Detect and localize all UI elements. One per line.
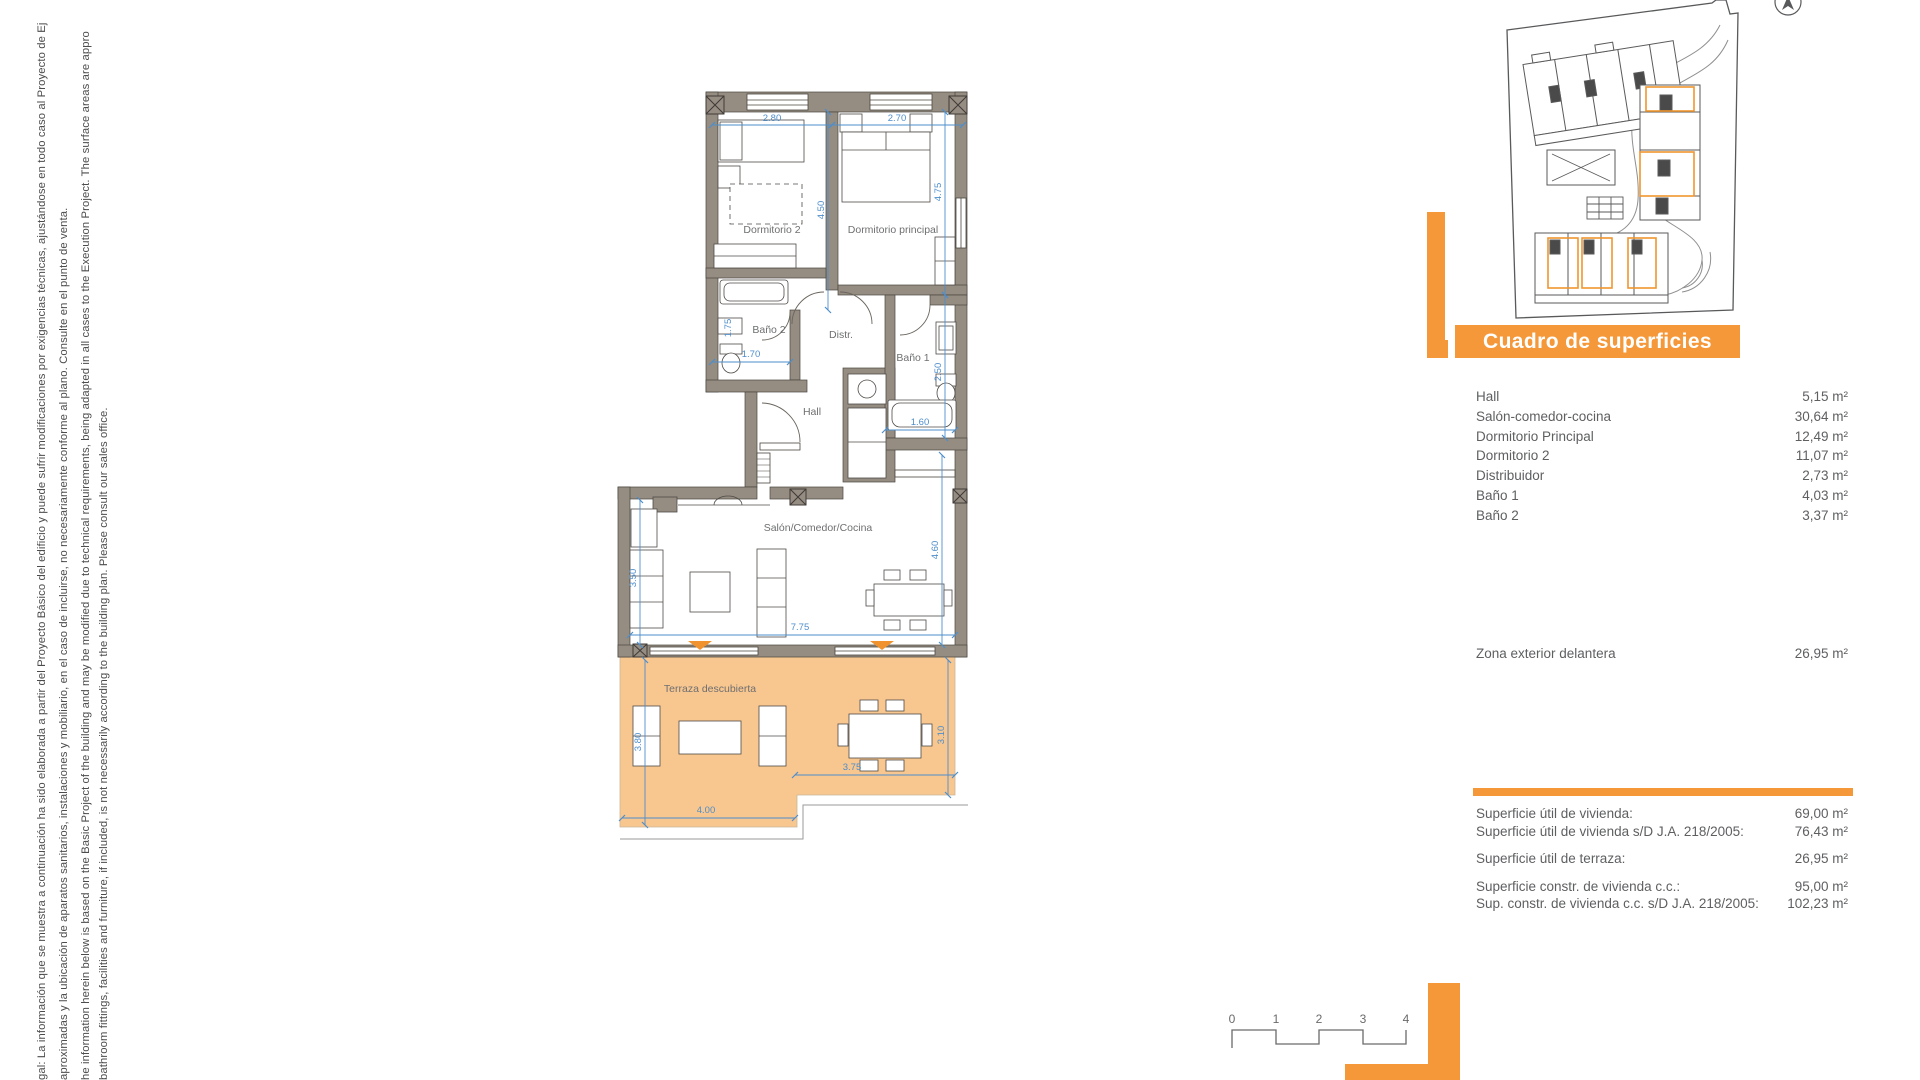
total-row: Superficie útil de terraza:26,95 m² [1476, 850, 1848, 868]
label-distribuidor: Distr. [829, 329, 853, 341]
label-dormitorio-2: Dormitorio 2 [743, 224, 800, 236]
row-value: 95,00 m² [1795, 878, 1848, 896]
exterior-row: Zona exterior delantera26,95 m² [1476, 644, 1848, 664]
row-value: 76,43 m² [1795, 823, 1848, 841]
row-label: Dormitorio 2 [1476, 446, 1550, 466]
row-label: Zona exterior delantera [1476, 644, 1616, 664]
row-label: Superficie constr. de vivienda c.c.: [1476, 878, 1680, 896]
row-value: 12,49 m² [1795, 427, 1848, 447]
scale-4: 4 [1403, 1012, 1410, 1026]
row-value: 4,03 m² [1802, 486, 1848, 506]
table-row: Baño 23,37 m² [1476, 506, 1848, 526]
hatched-door [757, 453, 770, 483]
row-value: 26,95 m² [1795, 850, 1848, 868]
row-value: 3,37 m² [1802, 506, 1848, 526]
dim-dorm2-width: 2.80 [763, 113, 782, 124]
disclaimer-line-es-2: aproximadas y la ubicación de aparatos s… [56, 0, 72, 1080]
row-label: Superficie útil de vivienda s/D J.A. 218… [1476, 823, 1744, 841]
site-plan [1490, 0, 1920, 330]
label-salon: Salón/Comedor/Cocina [764, 522, 873, 534]
row-label: Distribuidor [1476, 466, 1544, 486]
floor-plan: 2.80 2.70 4.50 4.75 1.70 1.75 1.60 2.50 … [560, 60, 1000, 880]
dim-terraza-width-left: 4.00 [697, 805, 716, 816]
scale-bar-line [1232, 1030, 1406, 1048]
dim-bano2-niche: 1.75 [723, 319, 734, 338]
orange-divider [1473, 788, 1853, 796]
disclaimer-line-en-1: he information herein below is based on … [78, 0, 94, 1080]
table-row: Distribuidor2,73 m² [1476, 466, 1848, 486]
dim-bano2-width: 1.70 [742, 349, 761, 360]
row-label: Superficie útil de terraza: [1476, 850, 1625, 868]
table-row: Salón-comedor-cocina30,64 m² [1476, 407, 1848, 427]
row-value: 5,15 m² [1802, 387, 1848, 407]
row-value: 11,07 m² [1796, 446, 1848, 466]
label-bano-1: Baño 1 [896, 352, 929, 364]
dim-salon-width: 7.75 [791, 622, 810, 633]
dim-bano1-depth: 2.50 [933, 363, 944, 382]
site-building-c [1535, 233, 1668, 303]
scale-0: 0 [1229, 1012, 1236, 1026]
disclaimer-line-es-1: gal: La información que se muestra a con… [34, 0, 50, 1080]
table-row: Dormitorio 211,07 m² [1476, 446, 1848, 466]
total-row: Superficie útil de vivienda s/D J.A. 218… [1476, 823, 1848, 841]
row-label: Hall [1476, 387, 1499, 407]
dim-terraza-left: 3.80 [633, 733, 644, 752]
label-hall: Hall [803, 406, 821, 418]
scale-2: 2 [1316, 1012, 1323, 1026]
table-row: Hall5,15 m² [1476, 387, 1848, 407]
row-value: 69,00 m² [1795, 805, 1848, 823]
dim-terraza-width-right: 3.75 [843, 762, 862, 773]
site-grid [1587, 197, 1623, 219]
scale-1: 1 [1273, 1012, 1280, 1026]
dim-terraza-right: 3.10 [936, 726, 947, 745]
total-row: Superficie útil de vivienda:69,00 m² [1476, 805, 1848, 823]
row-label: Baño 2 [1476, 506, 1519, 526]
row-label: Salón-comedor-cocina [1476, 407, 1611, 427]
corner-bracket-top-foot [1427, 340, 1448, 358]
total-row: Superficie constr. de vivienda c.c.:95,0… [1476, 878, 1848, 896]
row-label: Dormitorio Principal [1476, 427, 1594, 447]
row-label: Sup. constr. de vivienda c.c. s/D J.A. 2… [1476, 895, 1759, 913]
corner-bracket-bottom-foot [1345, 1064, 1460, 1080]
row-value: 102,23 m² [1787, 895, 1848, 913]
label-bano-2: Baño 2 [752, 324, 785, 336]
label-dormitorio-principal: Dormitorio principal [848, 224, 938, 236]
totals-block: Superficie útil de vivienda:69,00 m² Sup… [1476, 805, 1848, 913]
dim-dormp-depth: 4.75 [933, 183, 944, 202]
total-row: Sup. constr. de vivienda c.c. s/D J.A. 2… [1476, 895, 1848, 913]
dim-dormp-width: 2.70 [888, 113, 907, 124]
scale-bar: 0 1 2 3 4 [1215, 1000, 1425, 1060]
row-label: Superficie útil de vivienda: [1476, 805, 1633, 823]
label-terraza: Terraza descubierta [664, 683, 756, 695]
row-value: 26,95 m² [1795, 644, 1848, 664]
surfaces-table: Hall5,15 m² Salón-comedor-cocina30,64 m²… [1476, 387, 1848, 526]
page: gal: La información que se muestra a con… [0, 0, 1920, 1080]
north-arrow-icon [1775, 0, 1801, 15]
site-court [1547, 150, 1615, 185]
row-label: Baño 1 [1476, 486, 1519, 506]
scale-3: 3 [1360, 1012, 1367, 1026]
row-value: 2,73 m² [1802, 466, 1848, 486]
corner-bracket-top [1427, 212, 1445, 358]
dim-salon-left: 3.50 [628, 569, 639, 588]
dim-dorm2-depth: 4.50 [816, 201, 827, 220]
surfaces-title: Cuadro de superficies [1455, 325, 1740, 358]
dim-salon-right: 4.60 [930, 541, 941, 560]
table-row: Baño 14,03 m² [1476, 486, 1848, 506]
dim-bano1-width: 1.60 [911, 417, 930, 428]
disclaimer-line-en-2: bathroom fittings, facilities and furnit… [96, 0, 112, 1080]
table-row: Dormitorio Principal12,49 m² [1476, 427, 1848, 447]
row-value: 30,64 m² [1795, 407, 1848, 427]
